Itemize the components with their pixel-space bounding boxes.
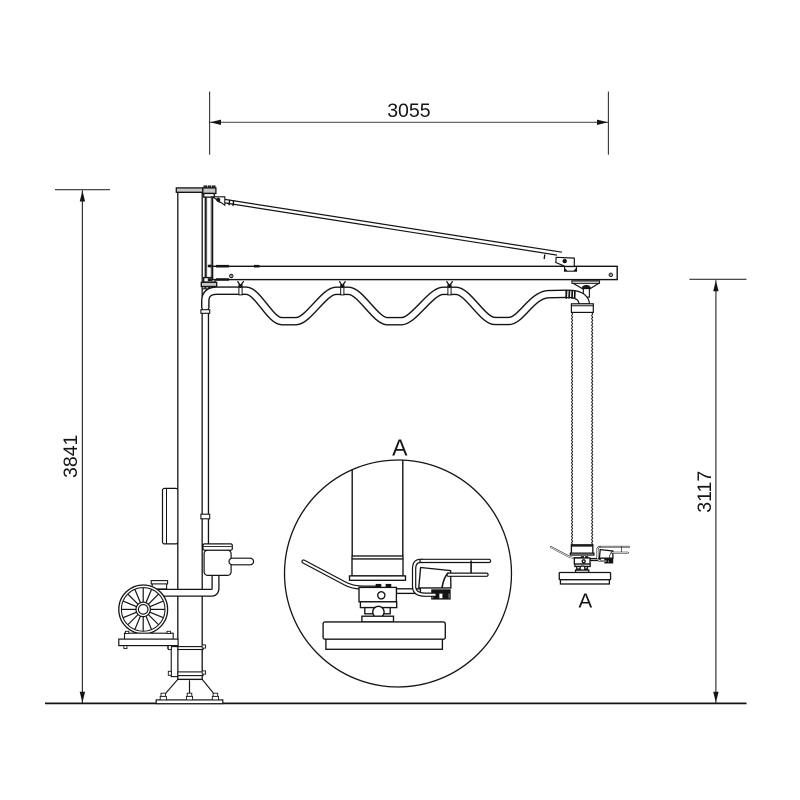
svg-text:3841: 3841	[60, 435, 82, 478]
svg-text:3117: 3117	[694, 471, 716, 513]
svg-text:A: A	[392, 434, 408, 460]
svg-text:A: A	[579, 589, 593, 612]
svg-text:3055: 3055	[387, 100, 431, 122]
